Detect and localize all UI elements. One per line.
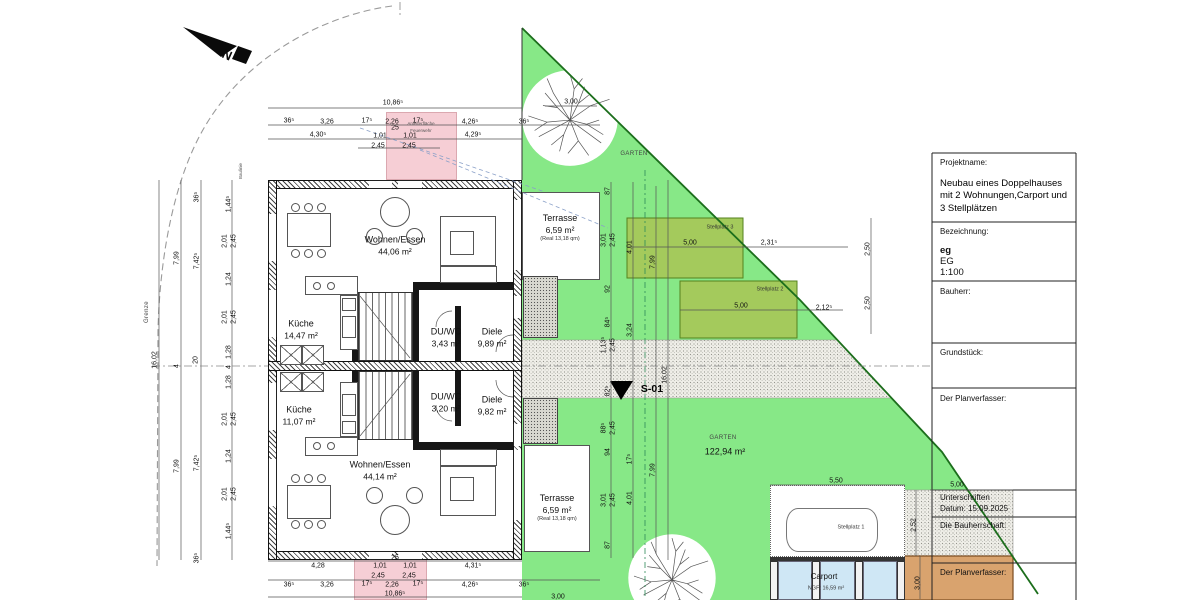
- dimension-label: 4: [174, 364, 181, 368]
- dimension-label: 25: [391, 125, 399, 132]
- site-label: Feuerwehr: [410, 129, 432, 134]
- titleblock-bauherrschaft-label: Die Bauherrschaft:: [940, 521, 1006, 530]
- room-area: 14,47 m²: [284, 330, 318, 341]
- dimension-label: 7,42⁵: [194, 455, 201, 472]
- titleblock-planverfasser-label: Der Planverfasser:: [940, 394, 1006, 403]
- dimension-label: 1,28: [226, 345, 233, 359]
- dimension-label: 1,01: [403, 563, 417, 570]
- dimension-label: 2,12⁵: [816, 305, 833, 312]
- site-plan-canvas: N Projektname: Neubau eines Doppelhauses…: [0, 0, 1200, 600]
- dimension-label: 25: [391, 555, 399, 562]
- dimension-label: 2,45: [610, 233, 617, 247]
- room-label: Küche11,07 m²: [283, 405, 316, 428]
- room-name: Küche: [284, 319, 318, 331]
- dimension-label: 2,45: [610, 421, 617, 435]
- dimension-label: 7,99: [650, 255, 657, 269]
- dimension-label: 2,01: [222, 310, 229, 324]
- titleblock-datum: Datum: 15.09.2025: [940, 504, 1008, 513]
- dimension-label: 16,02: [152, 351, 159, 369]
- dimension-label: 4,28: [311, 563, 325, 570]
- titleblock-projektname-label: Projektname:: [940, 158, 987, 167]
- site-label: Stellplatz 3: [707, 225, 734, 231]
- room-label: Terrasse6,59 m²(Real 13,18 qm): [537, 493, 576, 523]
- dimension-label: 17⁵: [413, 581, 424, 588]
- dimension-label: 2,45: [231, 487, 238, 501]
- dimension-label: 3,26: [320, 582, 334, 589]
- dimension-label: 16,02: [662, 366, 669, 384]
- dimension-label: 36⁵: [284, 118, 295, 125]
- dimension-label: 1,24: [226, 449, 233, 463]
- dimension-label: 2,45: [231, 234, 238, 248]
- dimension-label: 36⁵: [284, 582, 295, 589]
- room-name: Terrasse: [537, 493, 576, 505]
- dimension-label: 84⁵: [605, 317, 612, 328]
- dimension-label: 4,01: [627, 240, 634, 254]
- dimension-label: 17⁵: [362, 581, 373, 588]
- titleblock-floor: EG: [940, 256, 954, 267]
- room-area: 11,07 m²: [283, 416, 316, 427]
- dimension-label: 5,00: [950, 482, 964, 489]
- titleblock-scale: 1:100: [940, 267, 964, 278]
- dimension-label: 10,86⁵: [383, 100, 403, 107]
- dimension-label: 2,45: [610, 493, 617, 507]
- site-label: Anleiterfläche: [407, 122, 434, 127]
- dimension-label: 2,01: [222, 412, 229, 426]
- room-label: DU/WC3,20 m²: [431, 392, 462, 415]
- dimension-label: 2,26: [385, 582, 399, 589]
- dimension-label: 4,31⁵: [465, 563, 482, 570]
- dimension-label: 3,01: [601, 233, 608, 247]
- site-label: NGF: 16,59 m²: [808, 586, 844, 592]
- room-area: (Real 13,18 qm): [540, 236, 579, 243]
- room-label: Diele9,89 m²: [478, 327, 507, 350]
- room-area: 44,14 m²: [350, 471, 411, 482]
- room-name: Diele: [478, 327, 507, 339]
- room-area: (Real 13,18 qm): [537, 516, 576, 523]
- dimension-label: 36⁵: [519, 582, 530, 589]
- room-label: Küche14,47 m²: [284, 319, 318, 342]
- site-label: Stellplatz 2: [757, 287, 784, 293]
- dimension-label: 17⁵: [362, 118, 373, 125]
- dimension-label: 87: [605, 541, 612, 549]
- dimension-label: 2,50: [865, 242, 872, 256]
- titleblock-bezeichnung-label: Bezeichnung:: [940, 227, 988, 236]
- room-name: Diele: [478, 395, 507, 407]
- dimension-label: 2,45: [371, 573, 385, 580]
- dimension-label: 3,24: [627, 323, 634, 337]
- dimension-label: 2,45: [402, 143, 416, 150]
- site-label: Grenze: [144, 301, 150, 323]
- dimension-label: 4,29⁵: [465, 132, 482, 139]
- dimension-label: 20: [193, 356, 200, 364]
- dimension-label: 1,01: [403, 133, 417, 140]
- dimension-label: 1,24: [226, 272, 233, 286]
- dimension-label: 2,45: [231, 310, 238, 324]
- titleblock-unterschriften-label: Unterschriften: [940, 493, 990, 502]
- room-name: Küche: [283, 405, 316, 417]
- dimension-label: 2,45: [231, 412, 238, 426]
- room-area: 9,89 m²: [478, 338, 507, 349]
- dimension-label: 88⁵: [601, 423, 608, 434]
- dimension-label: 1,01: [373, 563, 387, 570]
- dimension-label: 3,26: [320, 119, 334, 126]
- dimension-label: 94: [605, 448, 612, 456]
- dimension-label: 7,99: [650, 463, 657, 477]
- site-label: GARTEN: [709, 435, 736, 441]
- titleblock-grundstueck-label: Grundstück:: [940, 348, 983, 357]
- titleblock-code: eg: [940, 245, 951, 256]
- room-name: DU/WC: [431, 327, 462, 339]
- room-area: 9,82 m²: [478, 406, 507, 417]
- dimension-label: 2,45: [402, 573, 416, 580]
- dimension-label: 36⁵: [194, 553, 201, 564]
- site-label: Carport: [811, 573, 838, 581]
- dimension-label: 4,30⁵: [310, 132, 327, 139]
- room-label: Terrasse6,59 m²(Real 13,18 qm): [540, 213, 579, 243]
- dimension-label: 87: [605, 187, 612, 195]
- dimension-label: 2,01: [222, 234, 229, 248]
- dimension-label: 7,99: [174, 251, 181, 265]
- room-label: Diele9,82 m²: [478, 395, 507, 418]
- dimension-label: 4: [226, 365, 233, 369]
- dimension-label: 2,45: [610, 338, 617, 352]
- site-label: 122,94 m²: [705, 448, 746, 457]
- room-label: Wohnen/Essen44,06 m²: [365, 235, 426, 258]
- room-name: Terrasse: [540, 213, 579, 225]
- dimension-label: 1,44⁵: [226, 523, 233, 540]
- site-label: Stellplatz 1: [838, 525, 865, 531]
- dimension-label: 4,01: [627, 491, 634, 505]
- dimension-label: 1,13⁵: [601, 337, 608, 354]
- dimension-label: 4,26⁵: [462, 119, 479, 126]
- dimension-label: 5,00: [734, 303, 748, 310]
- room-label: DU/WC3,43 m²: [431, 327, 462, 350]
- dimension-label: 7,42⁵: [194, 253, 201, 270]
- room-name: Wohnen/Essen: [365, 235, 426, 247]
- dimension-label: 5,00: [683, 240, 697, 247]
- dimension-label: 5,50: [829, 478, 843, 485]
- dimension-label: 1,01: [373, 133, 387, 140]
- room-area: 3,43 m²: [431, 338, 462, 349]
- room-area: 44,06 m²: [365, 246, 426, 257]
- dimension-label: 2,52: [911, 518, 918, 532]
- dimension-label: 2,50: [865, 296, 872, 310]
- room-area: 6,59 m²: [540, 225, 579, 236]
- titleblock-planverfasser2-label: Der Planverfasser:: [940, 568, 1006, 577]
- room-name: DU/WC: [431, 392, 462, 404]
- site-label: GARTEN: [620, 151, 647, 157]
- dimension-label: 82⁵: [605, 386, 612, 397]
- titleblock-projektname: Neubau eines Doppelhauses mit 2 Wohnunge…: [940, 178, 1072, 215]
- room-area: 6,59 m²: [537, 505, 576, 516]
- dimension-label: 1,44⁵: [226, 196, 233, 213]
- site-label: Baulinie: [239, 163, 244, 179]
- dimension-label: 4,26⁵: [462, 582, 479, 589]
- dimension-label: 2,31⁵: [761, 240, 778, 247]
- dimension-label: 2,45: [371, 143, 385, 150]
- dimension-label: 1,28: [226, 375, 233, 389]
- dimension-label: 92: [605, 285, 612, 293]
- dimension-label: 7,99: [174, 459, 181, 473]
- text-layer: Projektname: Neubau eines Doppelhauses m…: [0, 0, 1200, 600]
- dimension-label: 3,00: [551, 594, 565, 600]
- dimension-label: 3,01: [601, 493, 608, 507]
- dimension-label: 36⁵: [194, 192, 201, 203]
- site-label: S-01: [641, 384, 663, 395]
- dimension-label: 10,86⁵: [385, 591, 405, 598]
- dimension-label: 3,00: [564, 99, 578, 106]
- dimension-label: 36⁵: [519, 119, 530, 126]
- room-label: Wohnen/Essen44,14 m²: [350, 460, 411, 483]
- titleblock-bauherr-label: Bauherr:: [940, 287, 971, 296]
- dimension-label: 2,01: [222, 487, 229, 501]
- room-name: Wohnen/Essen: [350, 460, 411, 472]
- dimension-label: 17⁵: [627, 454, 634, 465]
- dimension-label: 3,00: [915, 576, 922, 590]
- room-area: 3,20 m²: [431, 403, 462, 414]
